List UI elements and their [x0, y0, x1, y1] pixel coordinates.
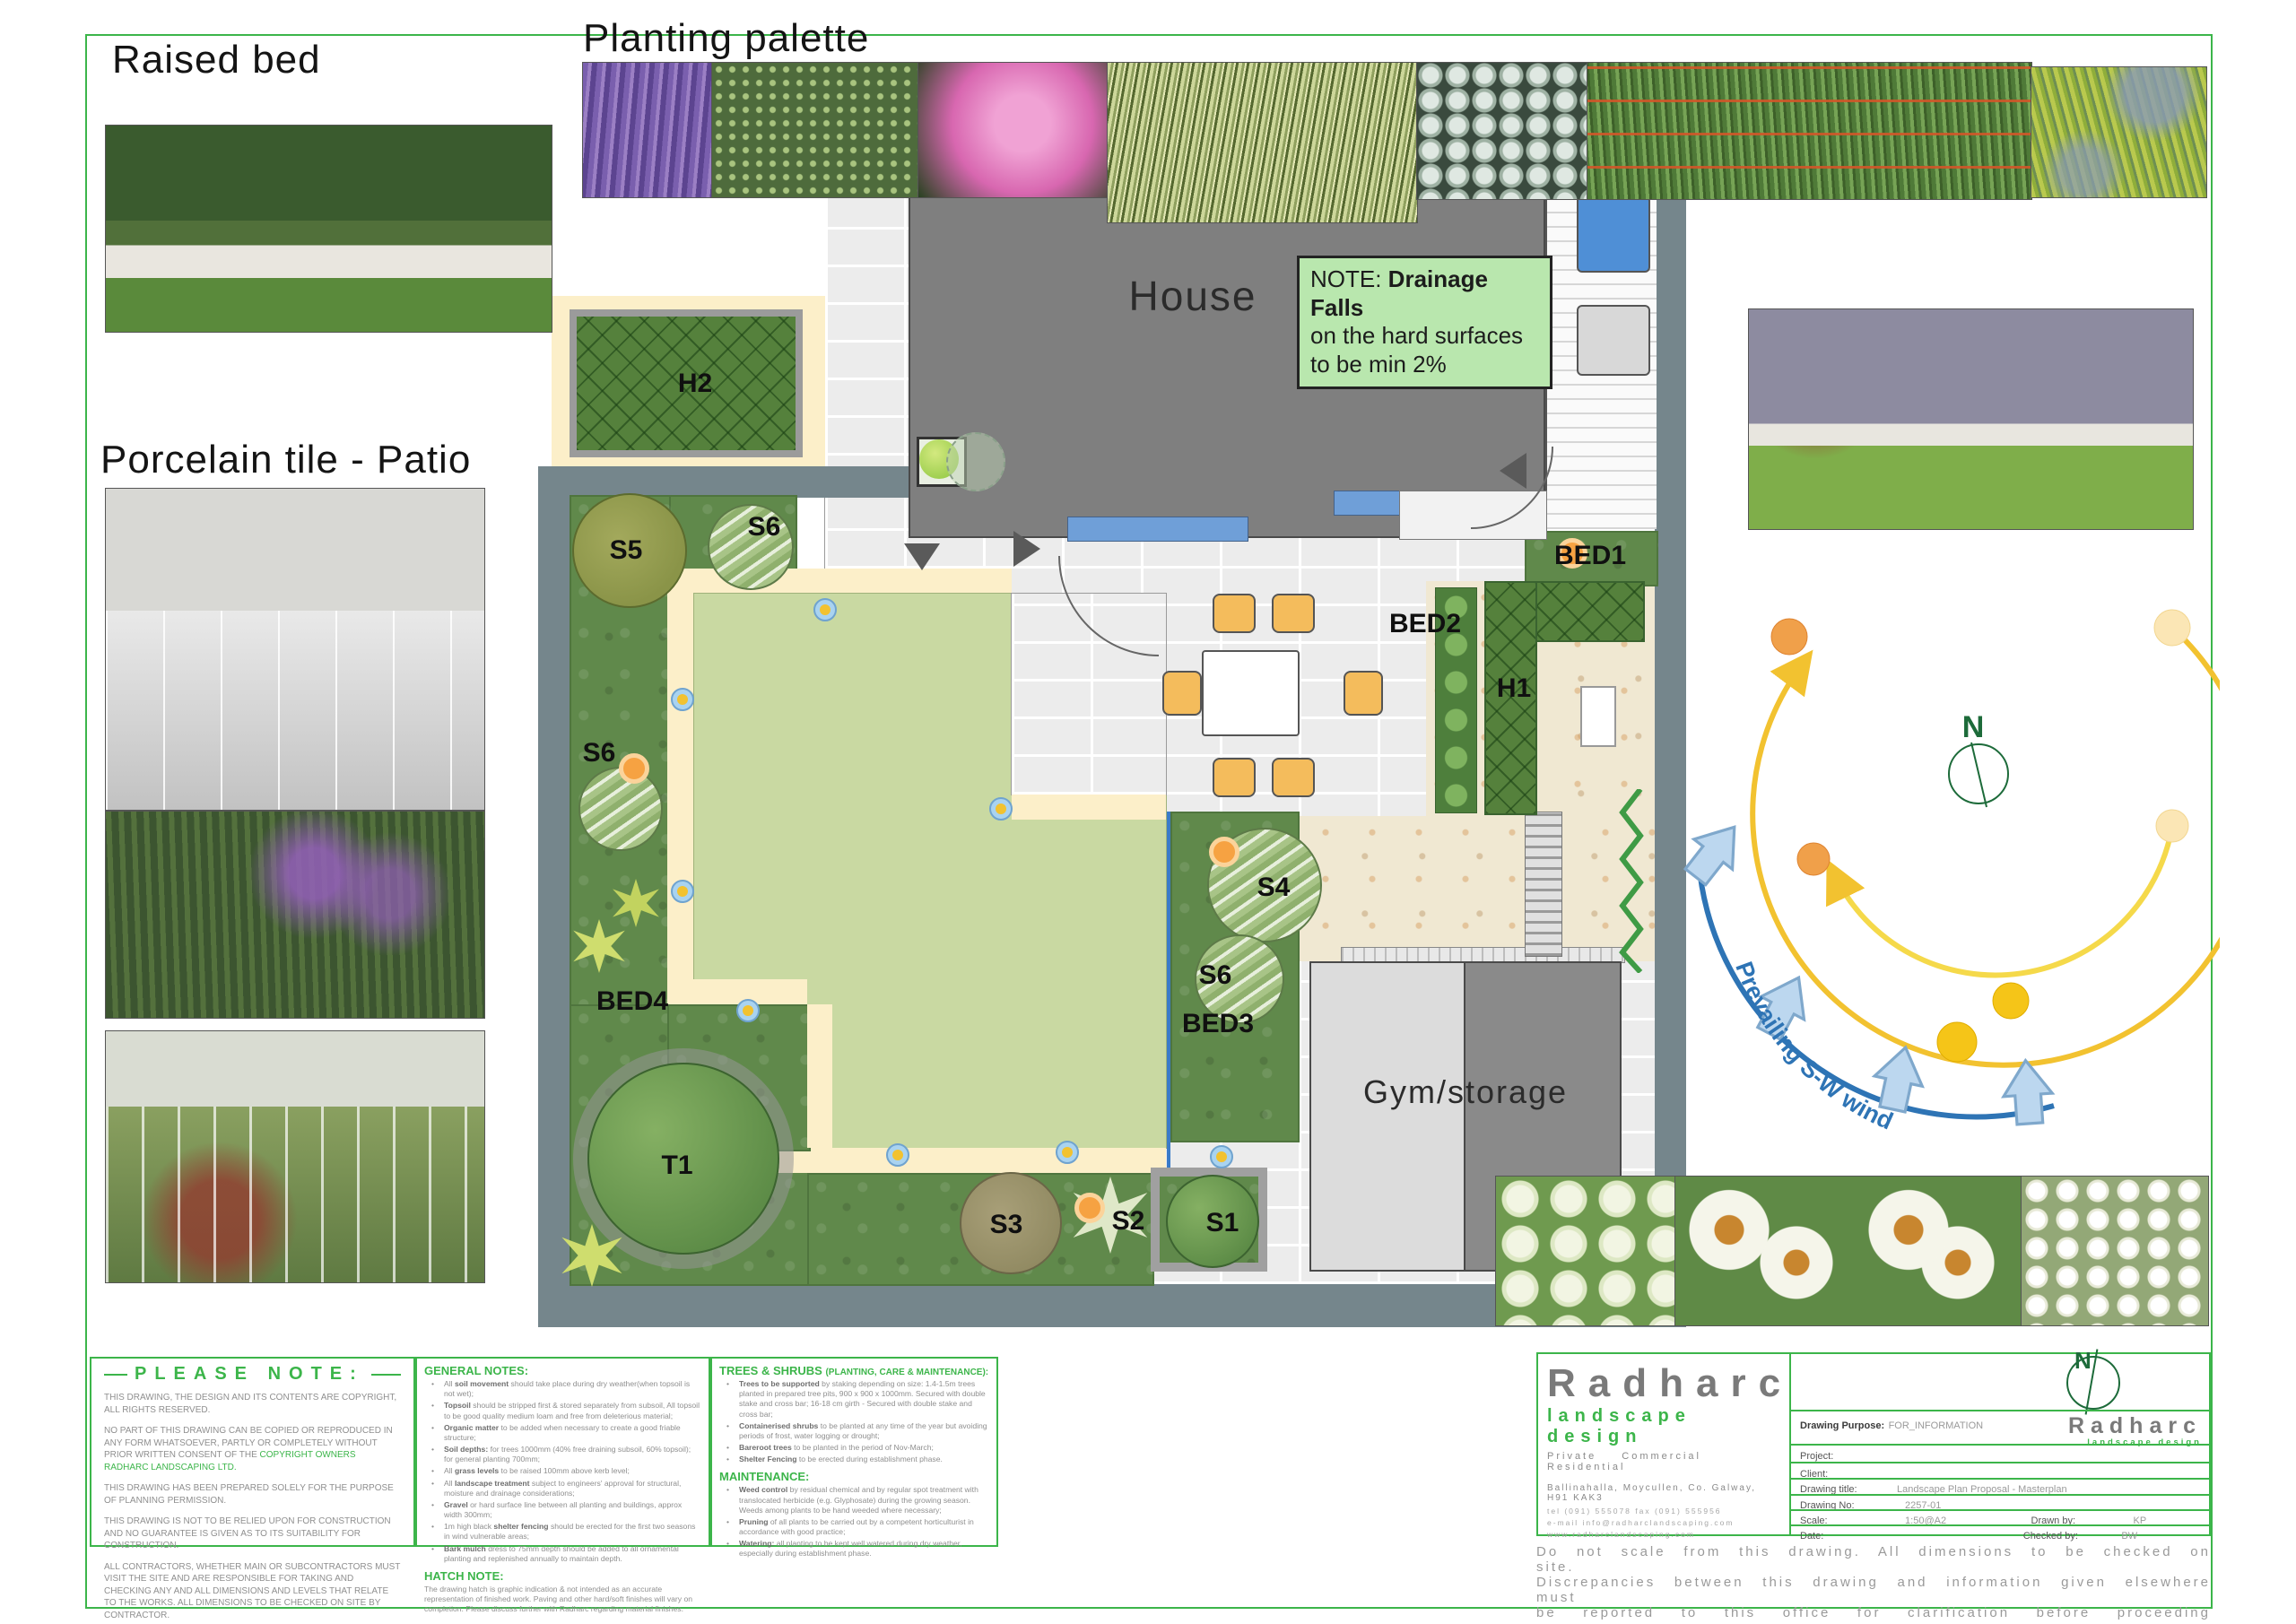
note-item: Gravel or hard surface line between all …	[424, 1500, 701, 1520]
date-row: Date: Checked by: BW	[1800, 1527, 2204, 1543]
path-notch-horiz	[1012, 795, 1166, 820]
plan-white-zone	[552, 193, 825, 296]
drainage-note-line2: on the hard surfaces	[1310, 322, 1539, 351]
label-h1: H1	[1497, 673, 1531, 704]
compass-north-label: N	[1962, 710, 1985, 744]
note-item: Weed control by residual chemical and by…	[719, 1485, 989, 1515]
step-light	[886, 1143, 909, 1167]
bin-general	[1577, 305, 1650, 376]
palette-photo-nerine	[918, 63, 1108, 197]
note-item: All landscape treatment subject to engin…	[424, 1479, 701, 1498]
company-sectors: Private Commercial Residential	[1547, 1451, 1780, 1472]
planter-box	[1580, 686, 1616, 747]
note-item: 1m high black shelter fencing should be …	[424, 1522, 701, 1541]
fall-arrow-down	[904, 543, 940, 570]
garden-borders-photo	[106, 812, 484, 1018]
fall-arrow-right	[1013, 531, 1040, 567]
bin-recycling	[1577, 195, 1650, 273]
dining-chair	[1272, 594, 1315, 633]
boundary-wall-left	[538, 466, 570, 1327]
tb-purpose-row: Drawing Purpose: FOR_INFORMATION	[1800, 1417, 1983, 1433]
trees-shrubs-title: TREES & SHRUBS (PLANTING, CARE & MAINTEN…	[719, 1364, 989, 1377]
label-s6-left: S6	[583, 738, 616, 769]
general-notes-title: GENERAL NOTES:	[424, 1364, 701, 1377]
please-note-title: PLEASE NOTE:	[135, 1364, 364, 1385]
candytuft-photo	[2022, 1177, 2208, 1325]
site-plan: H2 S5 S6 S6 BED4 T1 S3 S2 S1 S4 S6 BED3 …	[538, 99, 1686, 1327]
label-house: House	[1129, 272, 1257, 320]
fall-arrow-left	[1500, 453, 1526, 489]
label-gym: Gym/storage	[1363, 1073, 1568, 1111]
label-t1: T1	[661, 1151, 692, 1181]
shrub-s6-left	[578, 767, 663, 851]
path-corner-horiz	[667, 979, 807, 1004]
note-item: Pruning of all plants to be carried out …	[719, 1517, 989, 1537]
company-email: e-mail info@radharclandscaping.com	[1547, 1518, 1780, 1527]
step-light	[813, 598, 837, 621]
tb-logo-small: Radharc landscape design	[2068, 1415, 2202, 1447]
hatch-note-title: HATCH NOTE:	[424, 1569, 701, 1583]
step-light	[1210, 1145, 1233, 1168]
label-bed1: BED1	[1554, 541, 1626, 571]
note-item: THIS DRAWING IS NOT TO BE RELIED UPON FO…	[104, 1515, 401, 1552]
tb-north-label: N	[2074, 1347, 2092, 1375]
note-item: Shelter Fencing to be erected during est…	[719, 1455, 989, 1464]
purpose-value: FOR_INFORMATION	[1889, 1420, 1984, 1431]
path-corner-vert	[807, 1004, 832, 1148]
note-item: be reported to this office for clarifica…	[1536, 1605, 2211, 1620]
label-s6-mid: S6	[1199, 960, 1232, 991]
note-item: THIS DRAWING HAS BEEN PREPARED SOLELY FO…	[104, 1482, 401, 1507]
boundary-wall-band	[538, 466, 909, 498]
garden-lamp	[619, 753, 649, 784]
garden-lamp	[1074, 1193, 1105, 1223]
step-light	[1056, 1141, 1079, 1164]
dining-chair	[1213, 758, 1256, 797]
trees-shrubs-list: Trees to be supported by staking dependi…	[719, 1379, 989, 1464]
company-address: Ballinahalla, Moycullen, Co. Galway, H91…	[1547, 1483, 1780, 1503]
palette-photo-carex	[1108, 63, 1417, 222]
note-item: Do not scale from this drawing. All dime…	[1536, 1544, 2211, 1575]
note-item: Soil depths: for trees 1000mm (40% free …	[424, 1445, 701, 1464]
garden-patio-photo	[106, 1031, 484, 1282]
step-light	[989, 797, 1013, 821]
please-note-box: PLEASE NOTE: THIS DRAWING, THE DESIGN AN…	[90, 1357, 415, 1547]
dining-chair	[1213, 594, 1256, 633]
maintenance-title: MAINTENANCE:	[719, 1470, 989, 1483]
sun-east-outer	[2154, 610, 2190, 646]
step-light	[671, 880, 694, 903]
purpose-label: Drawing Purpose:	[1800, 1420, 1884, 1431]
palette-photo-brunnera	[1417, 63, 1587, 199]
company-name: Radharc	[1547, 1361, 1780, 1406]
gravel-area-lower	[1267, 816, 1655, 961]
dining-table	[1202, 650, 1300, 736]
company-web: www.radharclandscaping.com	[1547, 1530, 1780, 1539]
sun-east-inner	[2156, 810, 2188, 842]
company-tagline: landscape design	[1547, 1406, 1780, 1447]
sun-west-outer	[1771, 619, 1807, 655]
sun-wind-diagram: N Prevailing S-W wind	[1668, 529, 2220, 1148]
hedge-zigzag	[1619, 789, 1646, 973]
sun-west-inner	[1797, 843, 1830, 875]
label-s5: S5	[610, 535, 643, 566]
label-h2: H2	[678, 369, 712, 399]
sun-noon-outer	[1937, 1022, 1977, 1062]
house-window-1	[1067, 517, 1248, 542]
note-item: Containerised shrubs to be planted at an…	[719, 1421, 989, 1441]
label-bed4: BED4	[596, 986, 668, 1017]
raised-bed-photo	[106, 126, 552, 332]
garden-wall-photo	[1749, 309, 2193, 529]
planting-palette-heading: Planting palette	[583, 16, 869, 61]
label-bed3: BED3	[1182, 1009, 1254, 1039]
note-item: All soil movement should take place duri…	[424, 1379, 701, 1399]
dining-chair	[1344, 671, 1383, 716]
company-phone: tel (091) 555078 fax (091) 555956	[1547, 1507, 1780, 1515]
label-bed2: BED2	[1389, 609, 1461, 639]
sketch-shrub	[946, 432, 1005, 491]
title-block: Radharc landscape design Private Commerc…	[1536, 1352, 2211, 1536]
raised-bed-heading: Raised bed	[112, 38, 321, 83]
maintenance-list: Weed control by residual chemical and by…	[719, 1485, 989, 1559]
drainage-note-line3: to be min 2%	[1310, 351, 1539, 379]
note-item: Topsoil should be stripped first & store…	[424, 1401, 701, 1420]
drainage-note-line1: NOTE: Drainage Falls	[1310, 265, 1539, 322]
hatch-note-text: The drawing hatch is graphic indication …	[424, 1585, 701, 1615]
note-item: All grass levels to be raised 100mm abov…	[424, 1466, 701, 1476]
palette-photo-ferns	[2031, 67, 2206, 197]
gym-storage-left	[1309, 961, 1465, 1272]
note-item: Bareroot trees to be planted in the peri…	[719, 1443, 989, 1453]
palette-photo-grasses-chair	[1587, 63, 2031, 199]
please-note-title-row: PLEASE NOTE:	[104, 1364, 401, 1385]
label-s1: S1	[1206, 1208, 1239, 1238]
echinacea-photo	[1675, 1177, 2022, 1325]
note-item: THIS DRAWING, THE DESIGN AND ITS CONTENT…	[104, 1392, 401, 1416]
palette-photo-salvia	[583, 63, 712, 197]
palette-photo-shrub	[712, 63, 918, 197]
general-notes-box: GENERAL NOTES: All soil movement should …	[415, 1357, 710, 1547]
company-cell: Radharc landscape design Private Commerc…	[1538, 1354, 1791, 1534]
step-light	[671, 688, 694, 711]
sun-path-inner	[1834, 826, 2172, 975]
garden-lamp	[1209, 837, 1239, 867]
label-s2: S2	[1112, 1206, 1145, 1237]
sun-noon-inner	[1993, 983, 2029, 1019]
note-item: Trees to be supported by staking dependi…	[719, 1379, 989, 1420]
drainage-note: NOTE: Drainage Falls on the hard surface…	[1297, 256, 1552, 389]
please-note-paragraphs: THIS DRAWING, THE DESIGN AND ITS CONTENT…	[104, 1392, 401, 1621]
garden-bench	[1525, 812, 1562, 957]
label-s3: S3	[990, 1210, 1023, 1240]
label-s6-top: S6	[748, 512, 781, 543]
trees-shrubs-box: TREES & SHRUBS (PLANTING, CARE & MAINTEN…	[710, 1357, 998, 1547]
note-item: Organic matter to be added when necessar…	[424, 1423, 701, 1443]
dining-chair	[1162, 671, 1202, 716]
note-item: Bark mulch dress to 75mm depth should be…	[424, 1544, 701, 1564]
hydrangea-photo	[1496, 1177, 1675, 1325]
note-item: NO PART OF THIS DRAWING CAN BE COPIED OR…	[104, 1425, 401, 1473]
porcelain-patio-heading: Porcelain tile - Patio	[100, 438, 471, 482]
general-notes-list: All soil movement should take place duri…	[424, 1379, 701, 1564]
label-s4: S4	[1257, 873, 1291, 903]
disclaimer: Do not scale from this drawing. All dime…	[1536, 1544, 2211, 1620]
note-item: Discrepancies between this drawing and i…	[1536, 1575, 2211, 1605]
step-light	[736, 999, 760, 1022]
note-item: ALL CONTRACTORS, WHETHER MAIN OR SUBCONT…	[104, 1561, 401, 1622]
compass-needle	[1971, 743, 1987, 807]
dining-chair	[1272, 758, 1315, 797]
wind-label: Prevailing S-W wind	[1730, 958, 1897, 1134]
note-item: Watering: all planting to be kept well w…	[719, 1539, 989, 1559]
patio-tile-photo	[106, 489, 484, 810]
